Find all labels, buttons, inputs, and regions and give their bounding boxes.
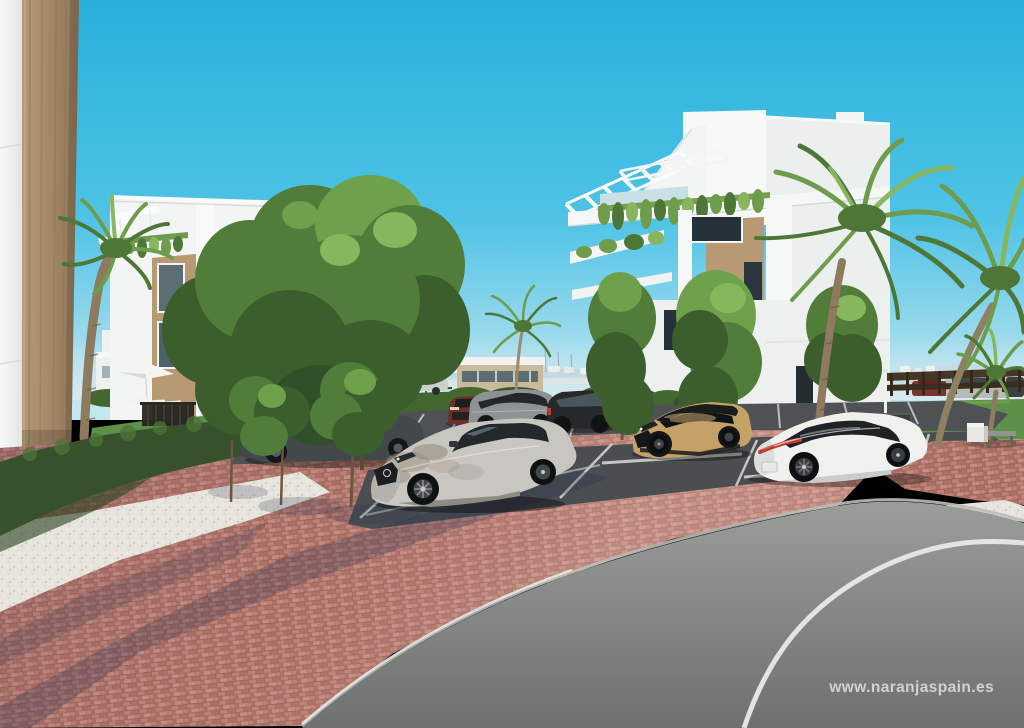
property-render: www.naranjaspain.es	[0, 0, 1024, 728]
mirror	[449, 441, 458, 447]
window	[690, 216, 742, 242]
watermark: www.naranjaspain.es	[829, 679, 994, 697]
concrete-cube	[967, 426, 984, 442]
foreground-building-corner	[0, 0, 79, 468]
mirror	[663, 418, 670, 423]
scene-illustration	[0, 0, 1024, 728]
bench	[988, 431, 1016, 436]
license-plate	[762, 462, 777, 472]
sapling-trunk	[231, 440, 232, 502]
white-wall-edge	[0, 0, 22, 468]
